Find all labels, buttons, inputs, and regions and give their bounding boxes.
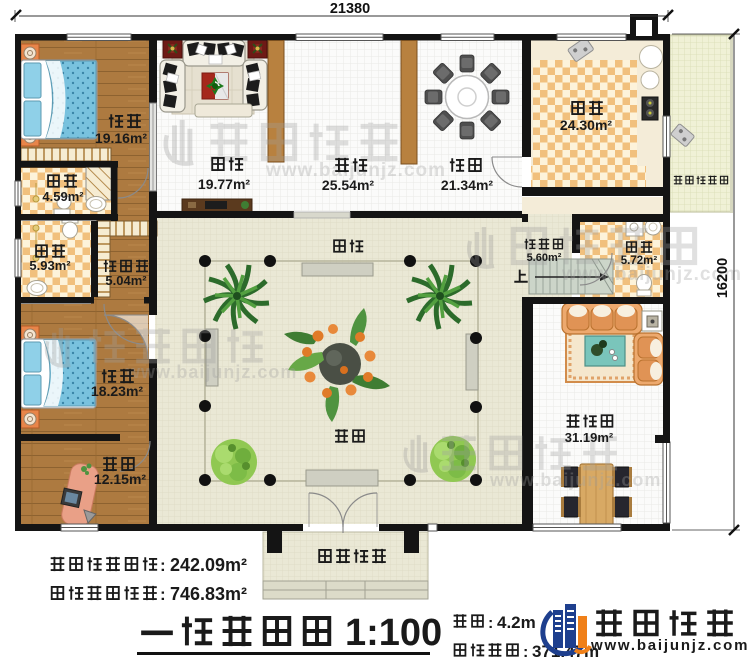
- svg-text:25.54m²: 25.54m²: [322, 177, 374, 193]
- svg-text:5.93m²: 5.93m²: [29, 258, 71, 273]
- svg-text:4.59m²: 4.59m²: [42, 189, 84, 204]
- svg-text:24.30m²: 24.30m²: [560, 117, 612, 133]
- svg-text:31.19m²: 31.19m²: [565, 430, 614, 445]
- svg-text:www.baijunjz.com: www.baijunjz.com: [125, 362, 297, 382]
- svg-text:19.16m²: 19.16m²: [95, 130, 147, 146]
- svg-text::: :: [160, 556, 166, 575]
- svg-text:www.baijunjz.com: www.baijunjz.com: [489, 470, 661, 490]
- svg-text:5.72m²: 5.72m²: [621, 255, 658, 267]
- svg-text::: :: [523, 644, 528, 661]
- svg-text:21380: 21380: [330, 1, 370, 17]
- svg-text:21.34m²: 21.34m²: [441, 177, 493, 193]
- svg-text:4.2m: 4.2m: [497, 613, 536, 632]
- svg-text:19.77m²: 19.77m²: [198, 176, 250, 192]
- svg-text:16200: 16200: [715, 258, 731, 298]
- svg-text:242.09m²: 242.09m²: [170, 555, 247, 575]
- svg-text::: :: [160, 585, 166, 604]
- svg-text::: :: [488, 615, 493, 632]
- svg-text:5.04m²: 5.04m²: [105, 273, 147, 288]
- svg-text:5.60m²: 5.60m²: [527, 252, 562, 264]
- svg-text:18.23m²: 18.23m²: [91, 383, 143, 399]
- svg-text:www.baijunjz.com: www.baijunjz.com: [590, 637, 749, 654]
- svg-text:746.83m²: 746.83m²: [170, 584, 247, 604]
- svg-text:12.15m²: 12.15m²: [94, 471, 146, 487]
- svg-text:1:100: 1:100: [345, 612, 442, 654]
